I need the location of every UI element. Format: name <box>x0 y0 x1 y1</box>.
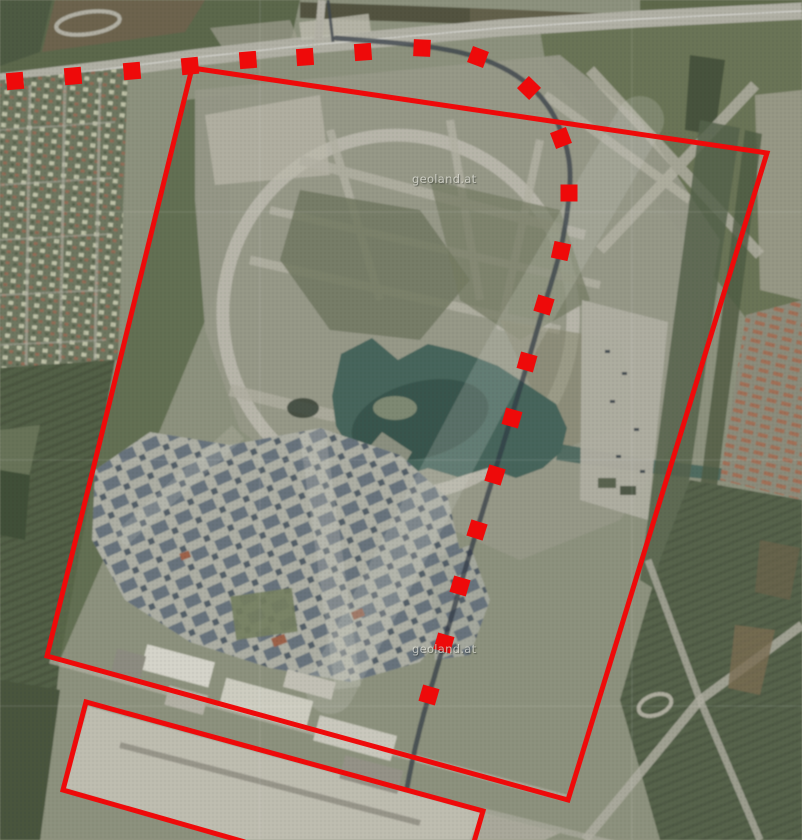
aerial-map-view[interactable]: geoland.at geoland.at <box>0 0 802 840</box>
boundary-annotation-layer <box>0 0 802 840</box>
